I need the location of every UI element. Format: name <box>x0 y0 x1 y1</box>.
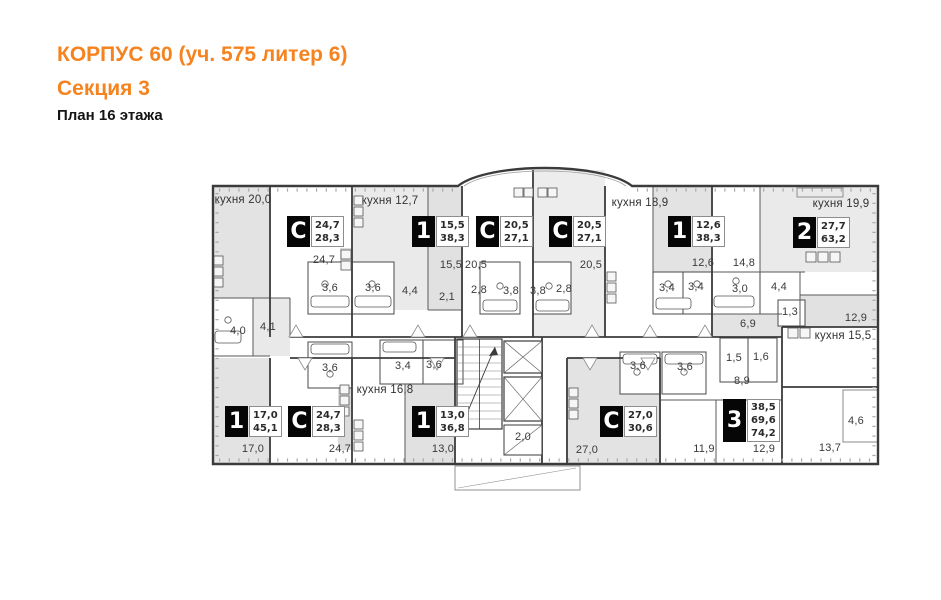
sink-icon <box>733 278 739 284</box>
sink-icon <box>634 369 640 375</box>
floor-plan-page: КОРПУС 60 (уч. 575 литер 6) Секция 3 Пла… <box>0 0 941 600</box>
sink-icon <box>681 369 687 375</box>
bathtub-icon <box>665 354 703 364</box>
bathtub-icon <box>311 344 349 354</box>
staircase <box>457 339 502 429</box>
sink-icon <box>546 283 552 289</box>
bathtub-icon <box>215 331 241 343</box>
bathtub-icon <box>714 296 754 307</box>
bathtub-icon <box>483 300 517 311</box>
sink-icon <box>369 281 375 287</box>
bathtub-icon <box>536 300 569 311</box>
sink-icon <box>322 281 328 287</box>
elevator-shafts <box>504 341 542 455</box>
bathtub-icon <box>355 296 391 307</box>
bathtub-icon <box>383 342 416 352</box>
sink-icon <box>497 283 503 289</box>
sink-icon <box>694 281 700 287</box>
bathtub-icon <box>311 296 349 307</box>
sink-icon <box>665 281 671 287</box>
sink-icon <box>225 317 231 323</box>
entrance-canopy <box>455 466 580 490</box>
bathtub-icon <box>656 298 691 309</box>
sink-icon <box>327 371 333 377</box>
floor-plan-drawing <box>0 0 941 600</box>
